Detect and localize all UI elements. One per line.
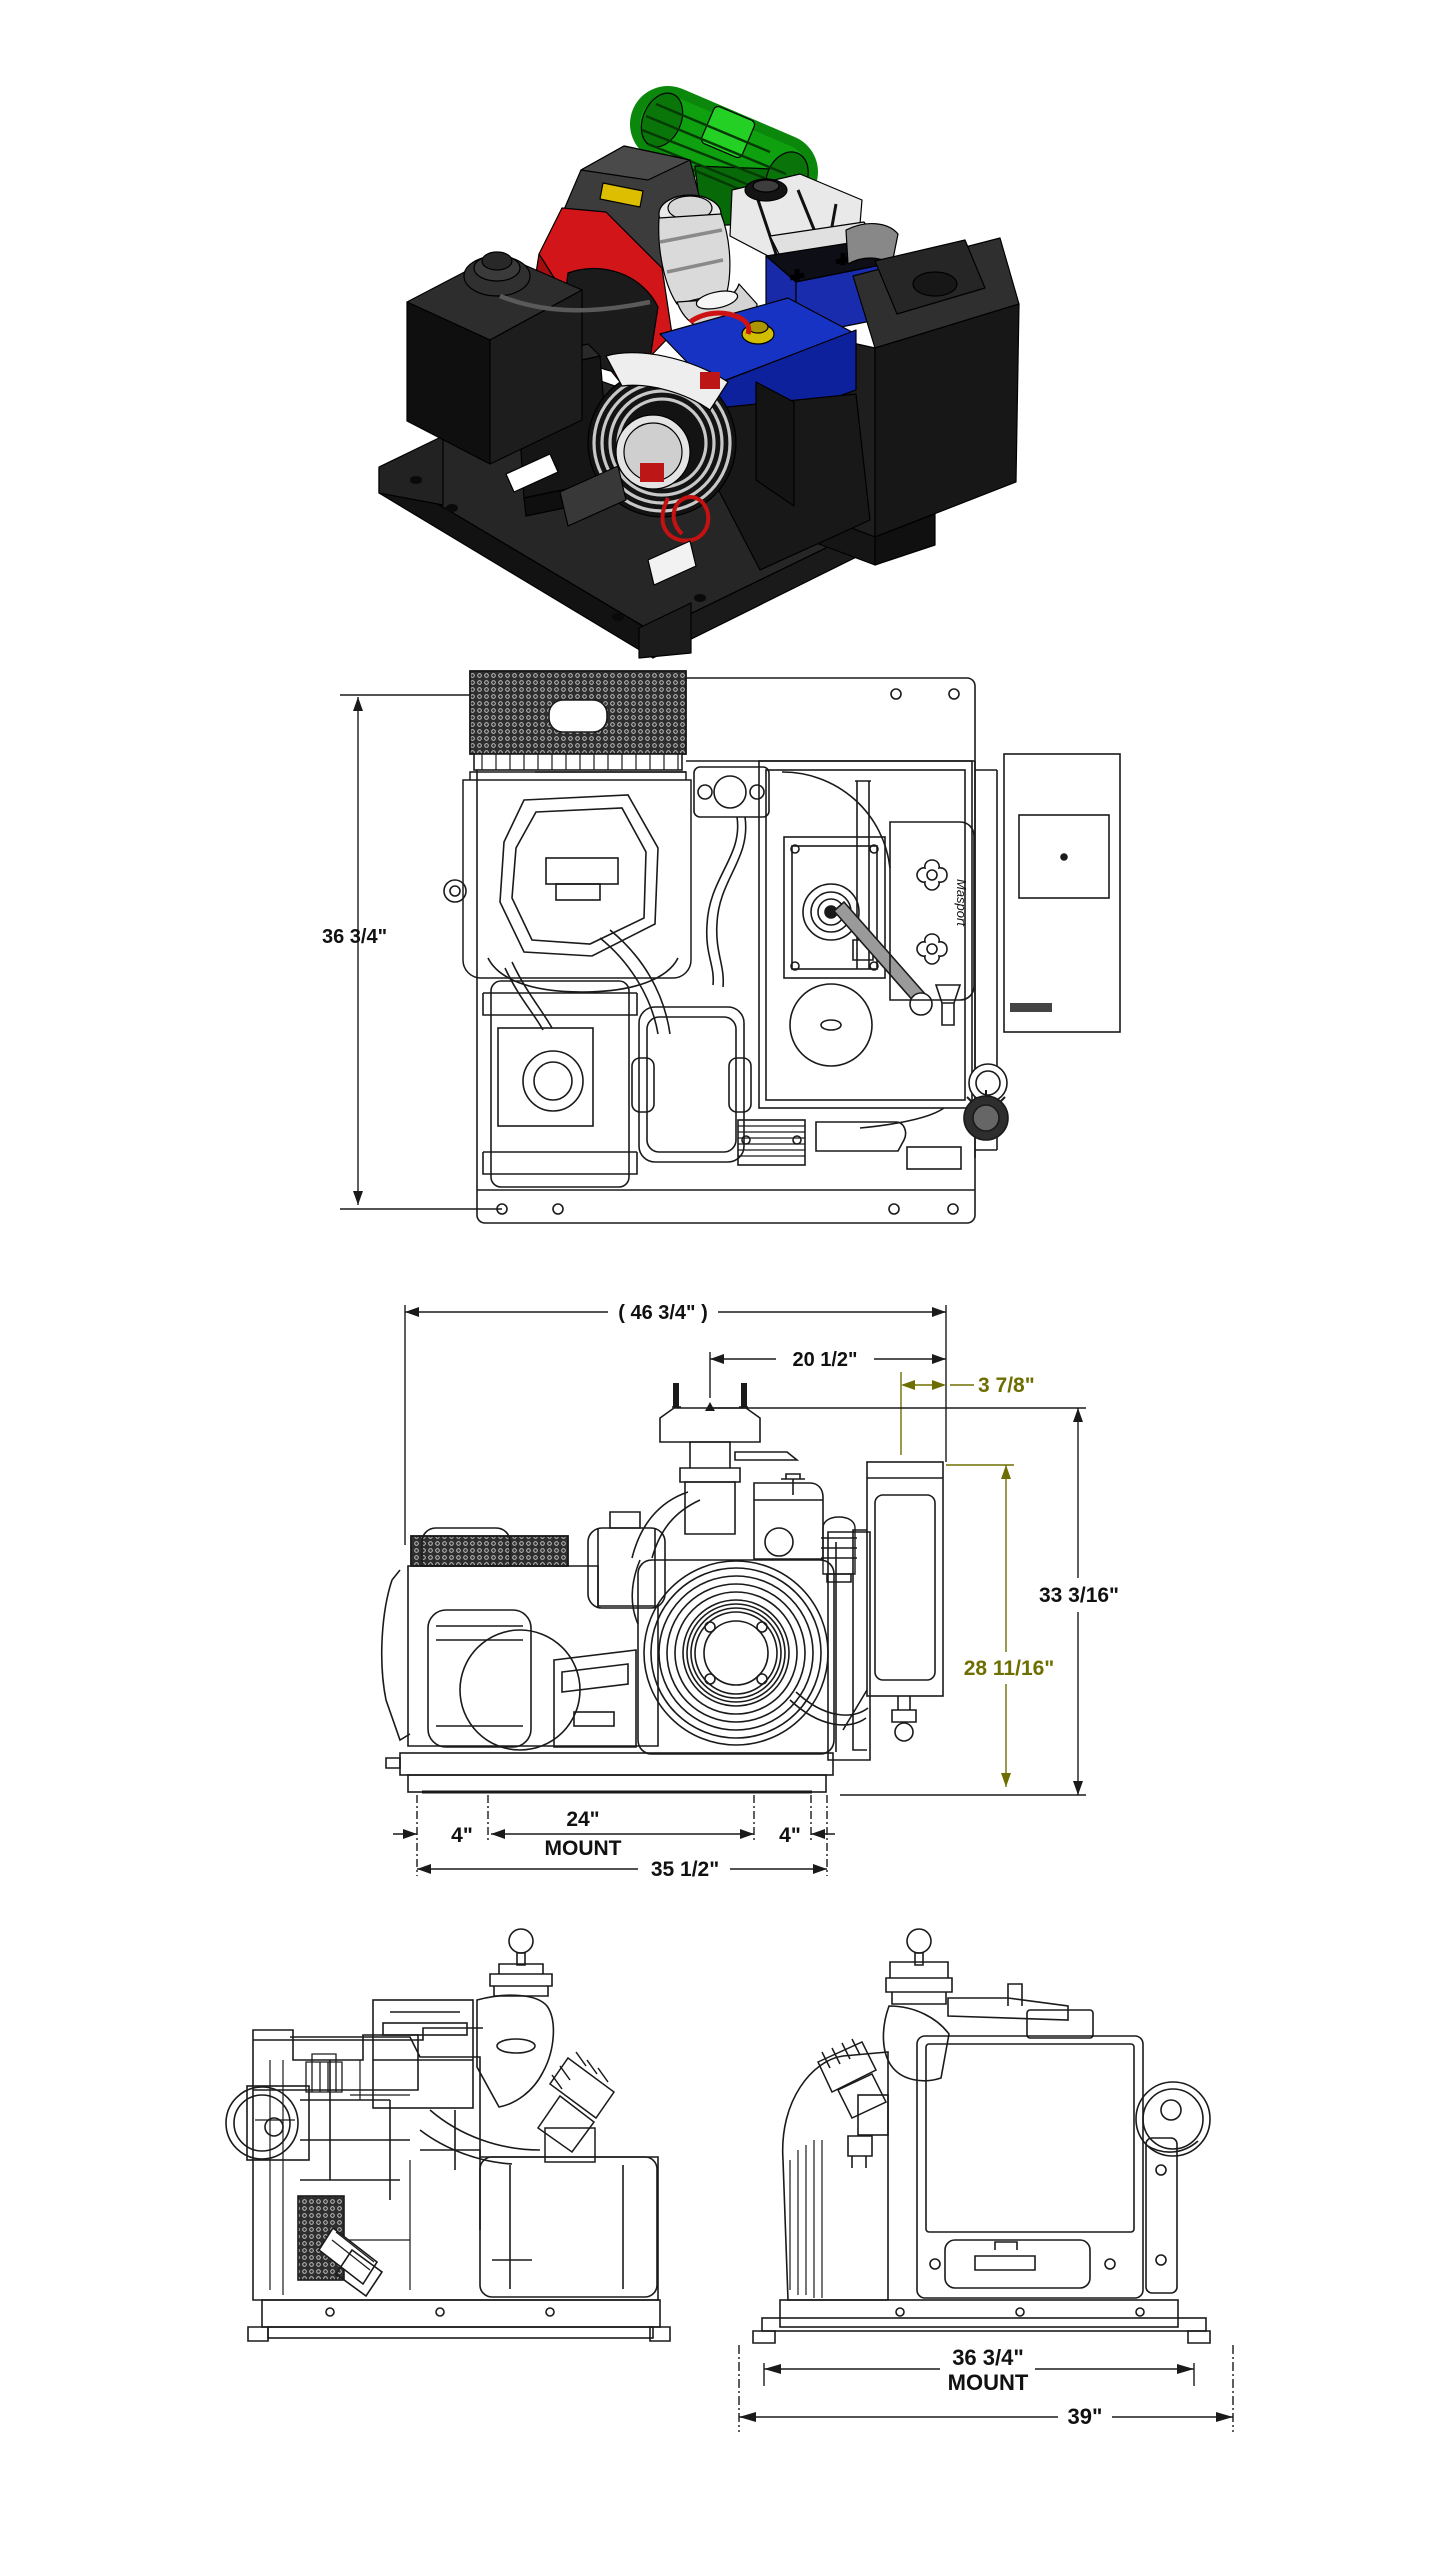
svg-text:35 1/2": 35 1/2"	[651, 1858, 719, 1881]
svg-text:28 11/16": 28 11/16"	[964, 1657, 1055, 1680]
svg-text:39": 39"	[1068, 2404, 1103, 2429]
svg-text:( 46 3/4" ): ( 46 3/4" )	[618, 1302, 708, 1324]
svg-text:4": 4"	[779, 1824, 801, 1847]
svg-text:20 1/2": 20 1/2"	[792, 1349, 857, 1371]
svg-text:33 3/16": 33 3/16"	[1039, 1584, 1119, 1607]
svg-text:MOUNT: MOUNT	[948, 2370, 1029, 2395]
svg-text:MOUNT: MOUNT	[545, 1837, 622, 1860]
svg-text:24": 24"	[566, 1808, 599, 1831]
svg-text:Masport: Masport	[954, 879, 969, 927]
svg-text:4": 4"	[451, 1824, 473, 1847]
svg-text:3 7/8": 3 7/8"	[978, 1374, 1035, 1397]
svg-text:36 3/4": 36 3/4"	[952, 2345, 1024, 2370]
svg-text:36 3/4": 36 3/4"	[322, 926, 387, 948]
